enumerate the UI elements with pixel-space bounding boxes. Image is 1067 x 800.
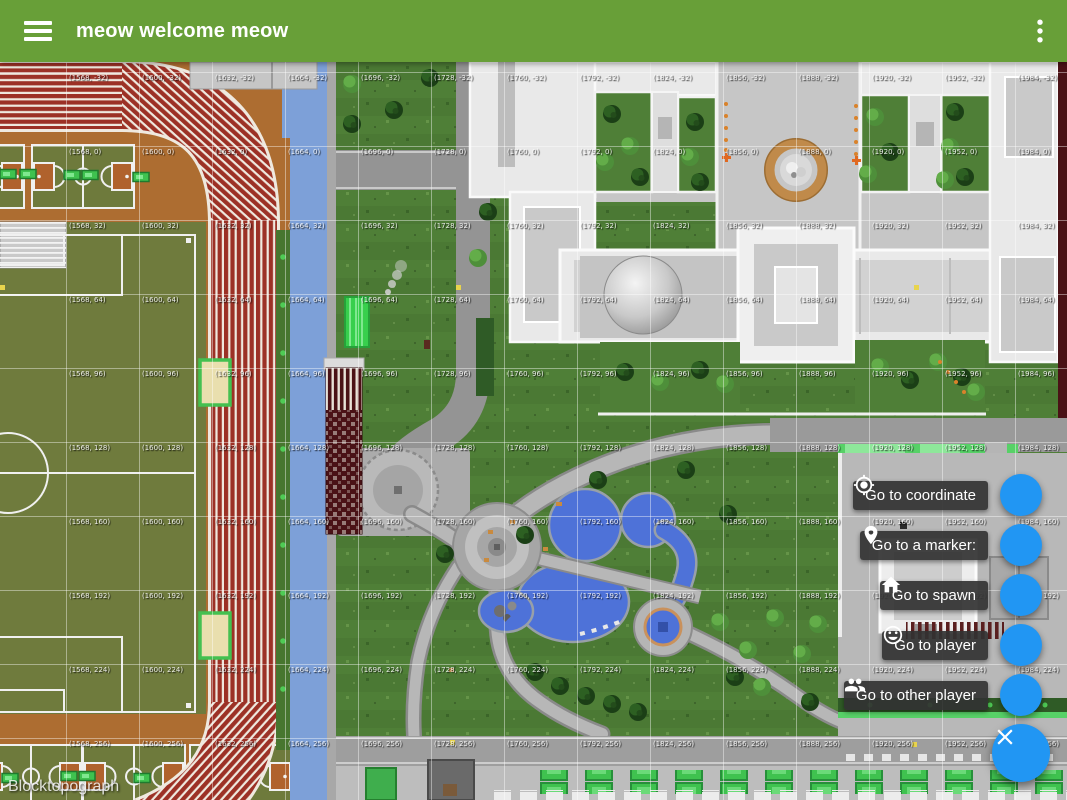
map-viewport[interactable]: (1568, -32)(1600, -32)(1632, -32)(1664, … [0,62,1067,800]
go-to-spawn-button[interactable] [1000,574,1042,616]
smiley-face-icon [882,624,904,646]
fab-row-go-to-coordinate: Go to coordinate [853,474,1042,516]
fab-menu: Go to coordinate Go to a marker: Go to s… [0,62,1067,800]
go-to-coordinate-button[interactable] [1000,474,1042,516]
fab-row-go-to-marker: Go to a marker: [860,524,1042,566]
hamburger-menu-icon[interactable] [24,21,52,41]
people-group-icon [844,674,866,696]
app-bar: meow welcome meow [0,0,1067,62]
fab-row-go-to-other-player: Go to other player [844,674,1042,716]
go-to-marker-button[interactable] [1000,524,1042,566]
fab-row-go-to-player: Go to player [882,624,1042,666]
go-to-other-player-button[interactable] [1000,674,1042,716]
place-marker-icon [860,524,882,546]
close-icon [992,724,1018,750]
overflow-menu-icon[interactable] [1037,0,1043,62]
home-icon [880,574,902,596]
go-to-player-button[interactable] [1000,624,1042,666]
my-location-icon [853,474,875,496]
close-fab-button[interactable] [992,724,1050,782]
fab-row-go-to-spawn: Go to spawn [880,574,1042,616]
page-title: meow welcome meow [76,20,288,43]
